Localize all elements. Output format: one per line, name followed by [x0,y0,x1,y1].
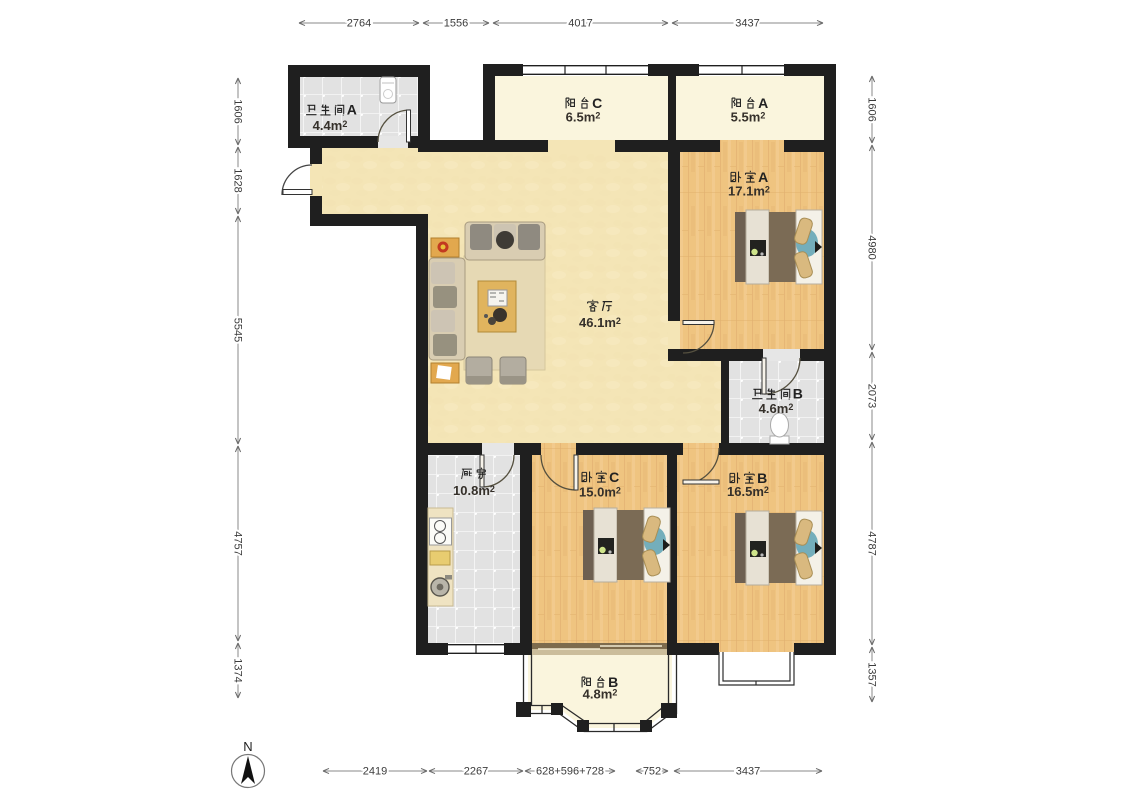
svg-text:B: B [793,386,803,402]
svg-text:2419: 2419 [363,766,387,778]
svg-text:46.1m2: 46.1m2 [579,315,621,330]
svg-text:4.6m2: 4.6m2 [759,401,794,416]
svg-text:3437: 3437 [735,18,759,30]
svg-text:16.5m2: 16.5m2 [727,484,769,499]
svg-text:1556: 1556 [444,18,468,30]
svg-text:1374: 1374 [231,658,243,682]
svg-text:6.5m2: 6.5m2 [566,110,601,125]
svg-text:10.8m2: 10.8m2 [453,483,495,498]
svg-text:4980: 4980 [865,235,877,259]
svg-text:1606: 1606 [231,99,243,123]
svg-text:3437: 3437 [736,766,760,778]
svg-text:A: A [758,169,768,185]
svg-text:2267: 2267 [464,766,488,778]
svg-text:C: C [609,469,619,485]
svg-text:4.4m2: 4.4m2 [313,118,348,133]
svg-text:4757: 4757 [231,531,243,555]
svg-text:A: A [347,102,357,118]
svg-text:17.1m2: 17.1m2 [728,184,770,199]
svg-text:1628: 1628 [231,168,243,192]
svg-text:15.0m2: 15.0m2 [579,485,621,500]
svg-text:5545: 5545 [231,318,243,342]
svg-text:752: 752 [643,766,661,778]
svg-text:4787: 4787 [865,531,877,555]
svg-text:2764: 2764 [347,18,371,30]
svg-text:C: C [592,95,602,111]
svg-text:2073: 2073 [865,384,877,408]
svg-text:1357: 1357 [865,662,877,686]
svg-text:1606: 1606 [865,97,877,121]
svg-text:5.5m2: 5.5m2 [731,110,766,125]
svg-text:N: N [243,739,252,754]
svg-text:4.8m2: 4.8m2 [583,687,618,702]
svg-text:4017: 4017 [568,18,592,30]
svg-text:A: A [758,95,768,111]
svg-text:628+596+728: 628+596+728 [536,766,604,778]
